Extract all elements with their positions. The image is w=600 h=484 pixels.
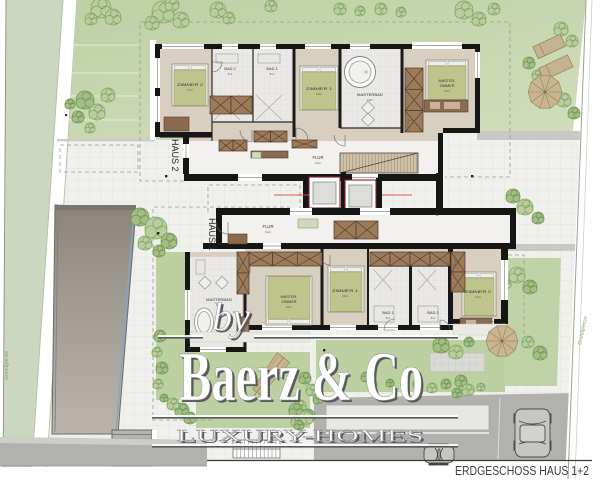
svg-text:ZIMMER 2: ZIMMER 2 (177, 82, 203, 87)
svg-text:ZIMMER: ZIMMER (440, 84, 455, 88)
svg-text:MASTER-: MASTER- (280, 295, 298, 299)
svg-text:17m²: 17m² (187, 88, 193, 92)
svg-text:BAD 1: BAD 1 (266, 66, 277, 71)
svg-text:6m²: 6m² (386, 316, 391, 320)
svg-text:HAUS 2: HAUS 2 (170, 139, 180, 172)
svg-text:ZIMMER 2: ZIMMER 2 (465, 289, 491, 294)
svg-text:by: by (212, 294, 250, 339)
svg-text:HAUS 1: HAUS 1 (207, 218, 217, 251)
svg-text:Baerz & Co: Baerz & Co (179, 339, 423, 416)
svg-text:ERDGESCHOSS HAUS 1+2: ERDGESCHOSS HAUS 1+2 (455, 463, 589, 478)
svg-text:MASTERBAD: MASTERBAD (357, 93, 383, 97)
svg-text:14m²: 14m² (475, 295, 481, 299)
svg-text:BAD 1: BAD 1 (382, 310, 393, 315)
svg-text:ZIMMER 1: ZIMMER 1 (306, 86, 332, 91)
svg-text:Grundgrenze: Grundgrenze (4, 351, 10, 380)
svg-text:BAD 2: BAD 2 (427, 310, 438, 315)
svg-text:ZIMMER 1: ZIMMER 1 (332, 288, 358, 293)
svg-text:ZIMMER: ZIMMER (282, 300, 297, 304)
svg-text:BAD 2: BAD 2 (224, 66, 235, 71)
svg-text:16m²: 16m² (316, 92, 322, 96)
svg-text:11m²: 11m² (265, 230, 271, 234)
svg-text:12m²: 12m² (315, 161, 321, 165)
svg-text:22m²: 22m² (286, 305, 292, 309)
svg-text:6m²: 6m² (431, 316, 436, 320)
svg-text:22m²: 22m² (444, 89, 450, 93)
svg-text:LUXURY-HOMES: LUXURY-HOMES (177, 426, 424, 445)
svg-text:FLUR: FLUR (263, 224, 274, 229)
svg-text:15m²: 15m² (342, 294, 348, 298)
svg-text:FLUR: FLUR (313, 155, 324, 160)
svg-text:6m²: 6m² (228, 72, 233, 76)
svg-text:MASTER-: MASTER- (438, 79, 456, 83)
svg-text:6m²: 6m² (270, 72, 275, 76)
